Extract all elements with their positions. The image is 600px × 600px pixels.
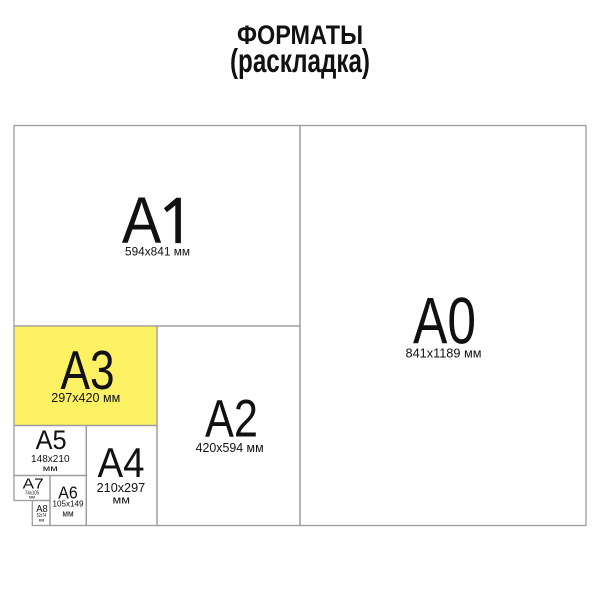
svg-text:297х420 мм: 297х420 мм [51, 391, 120, 405]
svg-text:мм: мм [39, 518, 45, 523]
svg-text:мм: мм [29, 495, 35, 500]
svg-text:594х841 мм: 594х841 мм [125, 247, 190, 259]
svg-text:841х1189 мм: 841х1189 мм [406, 347, 482, 361]
svg-text:A5: A5 [36, 425, 67, 455]
svg-text:(раскладка): (раскладка) [230, 42, 370, 79]
svg-text:мм: мм [113, 495, 131, 507]
svg-text:210х297: 210х297 [97, 480, 146, 495]
svg-text:мм: мм [62, 509, 73, 519]
svg-text:мм: мм [43, 463, 58, 473]
svg-text:420х594 мм: 420х594 мм [196, 441, 264, 455]
svg-text:A4: A4 [98, 439, 145, 486]
svg-text:A2: A2 [205, 390, 258, 449]
svg-text:105х149: 105х149 [53, 499, 84, 509]
